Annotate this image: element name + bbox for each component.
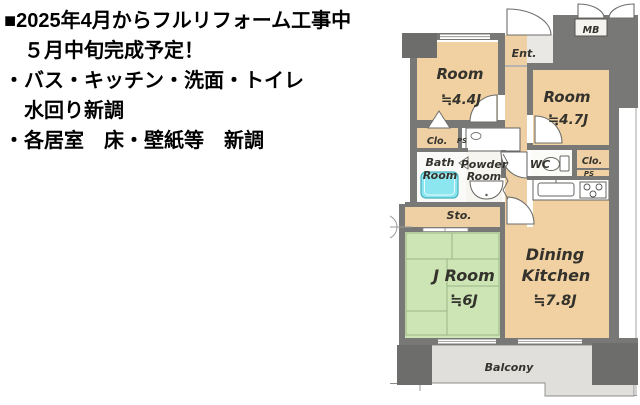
sliding-door-j-room <box>423 228 468 232</box>
storage-label: Sto. <box>447 209 472 222</box>
wc-label: WC <box>530 158 550 171</box>
j-room-size: ≒6J <box>450 293 478 309</box>
closet-left-label: Clo. <box>427 136 447 147</box>
vanity-drain <box>485 194 487 196</box>
meter-box-door-arc <box>578 4 604 18</box>
toilet-tank-icon <box>560 156 569 171</box>
dining-kitchen-label-1: Dining <box>526 245 584 264</box>
bath-label-2: Room <box>423 169 458 182</box>
bath-label-1: Bath <box>426 156 455 169</box>
entrance-door-arc <box>507 9 551 35</box>
floor-plan: N Room ≒4.4J Room ≒4.7J Ent. MB Clo. PS … <box>390 0 640 405</box>
kitchen-sink-icon <box>538 183 574 196</box>
dining-kitchen-door-arc <box>507 197 534 224</box>
dining-kitchen-label-2: Kitchen <box>522 266 591 285</box>
meter-box-door-arc <box>609 4 634 18</box>
notice-line-2: ５月中旬完成予定！ <box>4 36 404 66</box>
meter-box-label: MB <box>583 25 600 36</box>
entrance-label: Ent. <box>512 47 537 60</box>
window-j-room <box>438 340 496 344</box>
room-b-label: Room <box>543 88 590 106</box>
pillar-top-left <box>402 33 437 58</box>
floorplan-page: ■2025年4月からフルリフォーム工事中 ５月中旬完成予定！ ・バス・キッチン・… <box>0 0 640 405</box>
room-b-size: ≒4.7J <box>548 112 588 128</box>
renovation-notice: ■2025年4月からフルリフォーム工事中 ５月中旬完成予定！ ・バス・キッチン・… <box>4 6 404 156</box>
room-a-size: ≒4.4J <box>441 92 481 108</box>
closet-right-label: Clo. <box>582 156 602 167</box>
ps-right-label: PS <box>584 170 594 178</box>
pillar-bottom-right <box>592 343 638 385</box>
ps-left-label: PS <box>457 137 467 145</box>
notice-line-3: ・バス・キッチン・洗面・トイレ <box>4 66 404 96</box>
balcony-label: Balcony <box>485 361 534 374</box>
window-dining-kitchen <box>518 340 582 344</box>
powder-label-2: Room <box>467 170 502 183</box>
notice-line-1: ■2025年4月からフルリフォーム工事中 <box>4 6 404 36</box>
stove-icon <box>580 182 606 198</box>
j-room-label: J Room <box>430 266 495 285</box>
dining-kitchen-size: ≒7.8J <box>533 293 577 309</box>
pillar-bottom-left <box>397 345 432 385</box>
room-a-label: Room <box>436 65 483 83</box>
window-room-a <box>440 35 490 40</box>
notice-line-5: ・各居室 床・壁紙等 新調 <box>4 126 404 156</box>
notice-line-4: 水回り新調 <box>4 96 404 126</box>
